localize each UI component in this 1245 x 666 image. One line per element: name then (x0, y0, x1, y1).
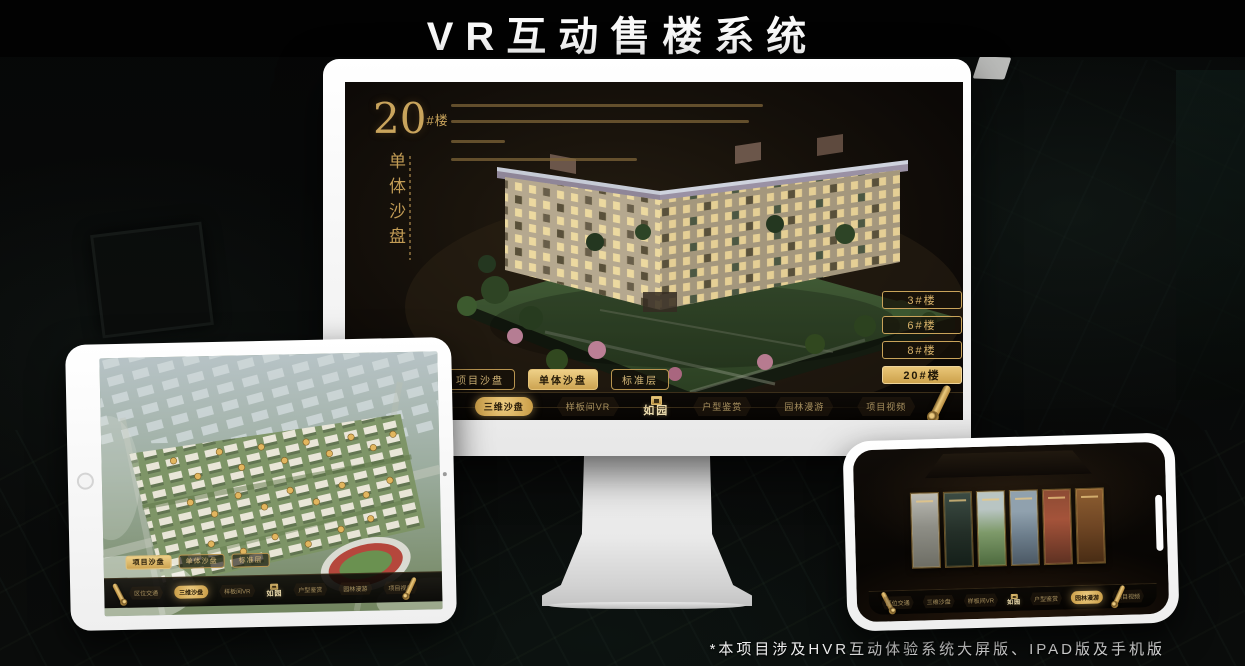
tablet-scroll-menu-icon-right[interactable] (402, 577, 418, 600)
gallery-panel[interactable] (1009, 489, 1040, 566)
menu-item-floorplan-gallery[interactable]: 户型鉴赏 (693, 397, 751, 416)
menu-item-project-video[interactable]: 项目视频 (857, 397, 915, 416)
gallery-panel[interactable] (976, 490, 1007, 567)
tablet-tab-standard-floor[interactable]: 标准层 (231, 553, 269, 568)
page-title: VR互动售楼系统 (0, 4, 1245, 62)
tablet-device: 项目沙盘 单体沙盘 标准层 区位交通 三维沙盘 样板间VR 如园 户型鉴赏 园林… (65, 337, 457, 631)
tablet-menu-item-location-traffic[interactable]: 区位交通 (129, 586, 163, 600)
tablet-brand-logo[interactable]: 如园 (266, 583, 282, 597)
phone-screen: 区位交通 三维沙盘 样板间VR 如园 户型鉴赏 园林漫游 项目视频 (853, 442, 1170, 623)
phone-device: 区位交通 三维沙盘 样板间VR 如园 户型鉴赏 园林漫游 项目视频 (842, 432, 1179, 631)
tablet-scroll-menu-icon-left[interactable] (111, 583, 127, 606)
building-headline: 20#楼 (373, 98, 449, 140)
gallery-panels (910, 487, 1106, 568)
tablet-screen: 项目沙盘 单体沙盘 标准层 区位交通 三维沙盘 样板间VR 如园 户型鉴赏 园林… (99, 351, 442, 616)
menu-item-model-room-vr[interactable]: 样板间VR (557, 397, 620, 416)
gallery-panel[interactable] (910, 492, 941, 569)
phone-menu-item-floorplan-gallery[interactable]: 户型鉴赏 (1030, 592, 1062, 606)
phone-brand-logo[interactable]: 如园 (1007, 593, 1021, 605)
description-line (451, 104, 763, 107)
tablet-tab-single-sandbox[interactable]: 单体沙盘 (178, 554, 224, 569)
phone-menu-item-3d-sandbox[interactable]: 三维沙盘 (923, 595, 955, 609)
brand-seal-icon (651, 396, 662, 405)
monitor-stand (542, 456, 752, 606)
tab-single-sandbox[interactable]: 单体沙盘 (528, 369, 598, 390)
footnote: *本项目涉及HVR互动体验系统大屏版、IPAD版及手机版 (710, 638, 1165, 659)
phone-scroll-menu-icon-right[interactable] (1111, 585, 1127, 608)
phone-menu-item-garden-tour[interactable]: 园林漫游 (1071, 590, 1103, 604)
gallery-panel[interactable] (1075, 487, 1106, 564)
gallery-panel[interactable] (943, 491, 974, 568)
tablet-home-button[interactable] (77, 473, 94, 490)
phone-brand-logo-text: 如园 (1007, 599, 1021, 605)
headline-english-vertical (409, 156, 411, 260)
tablet-brand-logo-text: 如园 (266, 590, 282, 597)
phone-menu-item-location-traffic[interactable]: 区位交通 (882, 596, 914, 610)
menu-item-3d-sandbox[interactable]: 三维沙盘 (475, 397, 533, 416)
description-line (451, 140, 505, 143)
tablet-menu-item-3d-sandbox[interactable]: 三维沙盘 (174, 585, 208, 599)
scroll-menu-icon[interactable] (927, 385, 953, 420)
headline-subtitle-vertical: 单体沙盘 (383, 152, 408, 252)
tablet-brand-seal-icon (270, 583, 278, 589)
tablet-tab-project-sandbox[interactable]: 项目沙盘 (125, 555, 171, 570)
monitor-base (548, 602, 746, 609)
tablet-menu-item-model-room-vr[interactable]: 样板间VR (219, 584, 256, 598)
phone-menu-item-model-room-vr[interactable]: 样板间VR (964, 593, 999, 607)
floor-button-20[interactable]: 20#楼 (882, 366, 962, 384)
floor-button-8[interactable]: 8#楼 (882, 341, 962, 359)
brand-logo-text: 如园 (643, 406, 669, 417)
brand-logo[interactable]: 如园 (643, 396, 669, 417)
tab-standard-floor[interactable]: 标准层 (611, 369, 669, 390)
tablet-menu-item-floorplan-gallery[interactable]: 户型鉴赏 (293, 583, 327, 597)
description-line (451, 158, 637, 161)
floor-button-6[interactable]: 6#楼 (882, 316, 962, 334)
description-line (451, 120, 749, 123)
phone-navbar: 区位交通 三维沙盘 样板间VR 如园 户型鉴赏 园林漫游 项目视频 (869, 583, 1158, 615)
background-plaque (90, 222, 214, 339)
tablet-menu-item-garden-tour[interactable]: 园林漫游 (338, 582, 372, 596)
tablet-camera-icon (443, 472, 447, 476)
tab-project-sandbox[interactable]: 项目沙盘 (445, 369, 515, 390)
building-number-suffix: #楼 (426, 113, 448, 128)
interior-archway-render (913, 449, 1104, 478)
stage: VR互动售楼系统 (0, 0, 1245, 666)
menu-item-garden-tour[interactable]: 园林漫游 (775, 397, 833, 416)
monitor-tab-row: 项目沙盘 单体沙盘 标准层 (445, 369, 669, 390)
building-number: 20 (373, 94, 426, 143)
gallery-panel[interactable] (1042, 488, 1073, 565)
background-photo-strip (1176, 70, 1245, 400)
floor-button-group: 3#楼 6#楼 8#楼 20#楼 (882, 291, 962, 384)
phone-brand-seal-icon (1010, 593, 1017, 598)
floor-button-3[interactable]: 3#楼 (882, 291, 962, 309)
